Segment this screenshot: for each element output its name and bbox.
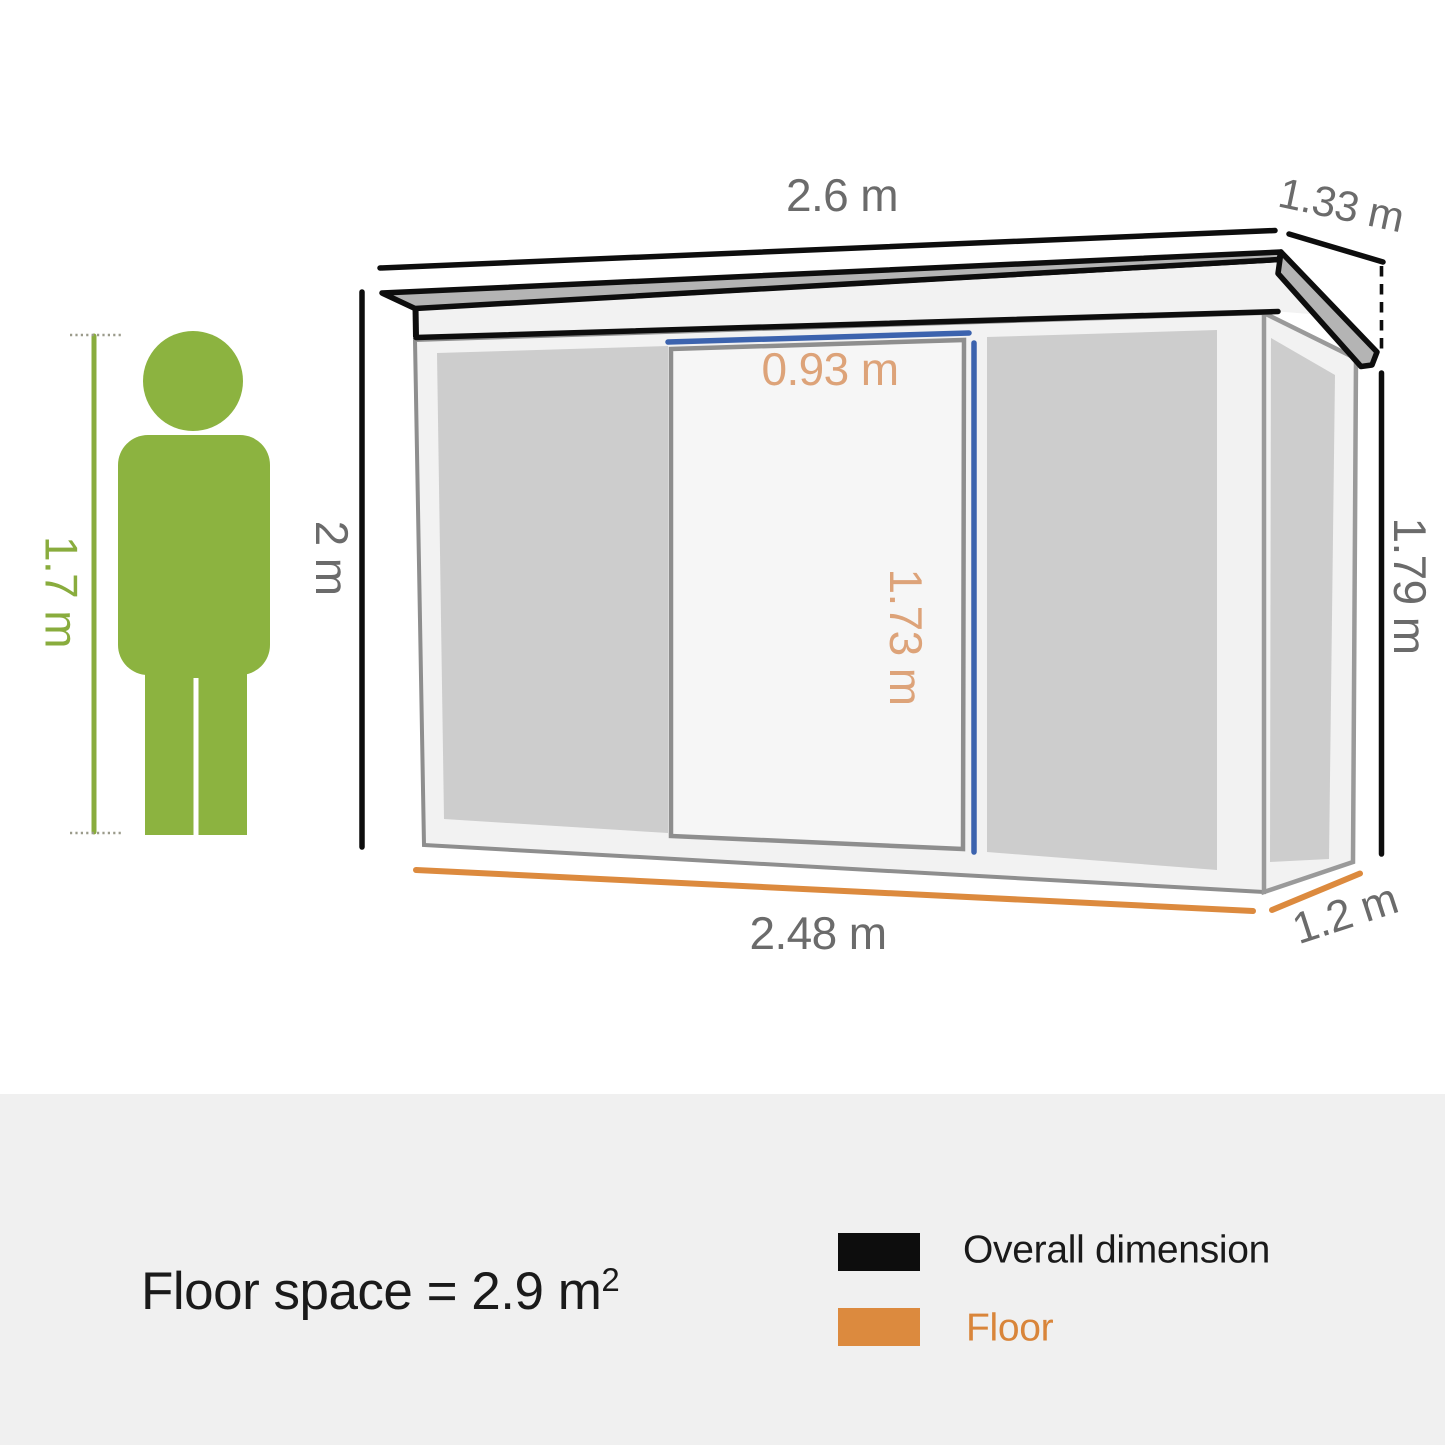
svg-text:1.7 m: 1.7 m <box>36 536 88 648</box>
svg-text:0.93 m: 0.93 m <box>761 343 898 395</box>
svg-text:2.6 m: 2.6 m <box>786 169 898 221</box>
svg-text:Overall dimension: Overall dimension <box>963 1229 1270 1272</box>
svg-text:Floor space = 2.9 m2: Floor space = 2.9 m2 <box>141 1261 619 1321</box>
svg-text:Floor: Floor <box>966 1307 1054 1350</box>
svg-text:2 m: 2 m <box>306 521 358 596</box>
svg-text:1.73 m: 1.73 m <box>880 568 932 705</box>
svg-text:2.48 m: 2.48 m <box>749 907 886 959</box>
svg-text:1.79 m: 1.79 m <box>1384 517 1436 654</box>
